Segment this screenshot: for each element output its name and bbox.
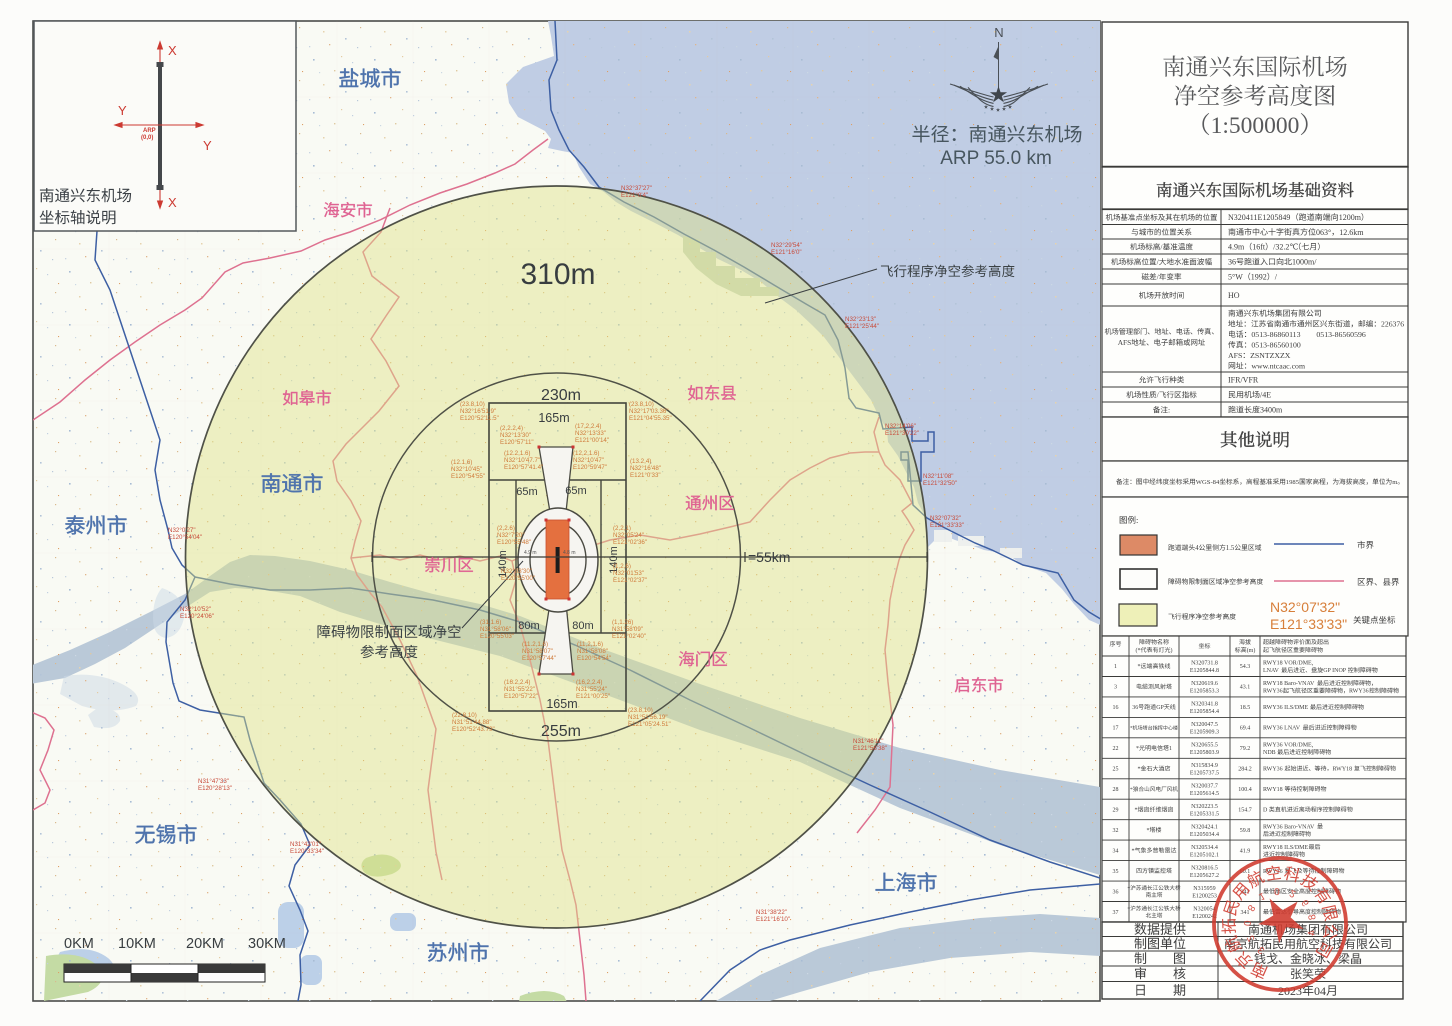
svg-text:www.ntcaac.com: www.ntcaac.com [1251, 362, 1305, 371]
svg-text:(13.2,4): (13.2,4) [630, 458, 651, 465]
svg-text:1: 1 [1169, 746, 1172, 752]
svg-text:N31°46'11": N31°46'11" [853, 738, 884, 745]
svg-text:165m: 165m [538, 411, 569, 425]
svg-text:N31°58'08": N31°58'08" [577, 648, 608, 655]
svg-text:LNAV: LNAV [1263, 668, 1280, 674]
svg-text:(m): (m) [1247, 647, 1256, 654]
svg-text:E121°16'0": E121°16'0" [771, 249, 802, 256]
svg-text:(22.8,10): (22.8,10) [452, 712, 477, 719]
svg-text:N32°01'53": N32°01'53" [613, 570, 644, 577]
svg-text:*: * [1138, 767, 1141, 773]
svg-text:4.9m: 4.9m [1228, 243, 1245, 252]
svg-text:1000m/: 1000m/ [1292, 258, 1317, 267]
svg-text:RWY18: RWY18 [1333, 767, 1353, 773]
svg-text:(17,2,2.4): (17,2,2.4) [575, 423, 601, 430]
svg-text:HO: HO [1228, 291, 1240, 300]
svg-text:E121°16'10": E121°16'10" [756, 916, 790, 923]
svg-text:18.5: 18.5 [1240, 705, 1251, 711]
svg-text:*: * [1147, 828, 1150, 834]
svg-text:N32°37'27": N32°37'27" [621, 185, 652, 192]
svg-text:12.6km: 12.6km [1339, 228, 1364, 237]
svg-text:29: 29 [1113, 808, 1119, 814]
svg-text:0: 0 [1241, 920, 1252, 926]
svg-text:N320341.8: N320341.8 [1191, 702, 1218, 708]
svg-text:X: X [168, 43, 177, 58]
svg-text:(16.2,2.4): (16.2,2.4) [504, 679, 530, 686]
svg-text:341: 341 [1241, 910, 1250, 916]
svg-text:16: 16 [1113, 705, 1119, 711]
svg-text:41.9: 41.9 [1240, 848, 1251, 854]
svg-text:E120°55'03": E120°55'03" [480, 633, 514, 640]
svg-text:/32.2℃: /32.2℃ [1273, 243, 1298, 252]
svg-text:*: * [1127, 886, 1130, 892]
svg-text:0513-86560100: 0513-86560100 [1251, 341, 1300, 350]
svg-text:E120°52'11.5": E120°52'11.5" [460, 415, 499, 422]
svg-text:N320424.1: N320424.1 [1191, 824, 1218, 830]
svg-text:*: * [1130, 787, 1133, 793]
svg-text:N320411E1205849: N320411E1205849 [1228, 213, 1290, 222]
svg-text:4.8 m: 4.8 m [563, 550, 576, 556]
svg-text:(23.8,10): (23.8,10) [460, 401, 485, 408]
svg-text:80m: 80m [518, 620, 539, 632]
svg-text:E121°02'40": E121°02'40" [612, 633, 646, 640]
svg-text:0513-86860113: 0513-86860113 [1251, 330, 1300, 339]
svg-text:E120°57'22": E120°57'22" [504, 693, 538, 700]
svg-text:E1205844.8: E1205844.8 [1190, 668, 1219, 674]
svg-text:E121°32'50": E121°32'50" [923, 480, 957, 487]
svg-text:(*: (* [1136, 647, 1141, 654]
svg-text:N31°47'33": N31°47'33" [198, 778, 229, 785]
svg-text:*: * [1132, 848, 1135, 854]
svg-text:(2,2.6): (2,2.6) [497, 525, 515, 532]
svg-text:RWY18: RWY18 [1263, 787, 1283, 793]
svg-text:N320054: N320054 [1193, 906, 1215, 912]
svg-text:(23.8,10): (23.8,10) [629, 401, 654, 408]
svg-text:E120°57'41.4": E120°57'41.4" [504, 464, 543, 471]
svg-text:E1205102.1: E1205102.1 [1190, 852, 1219, 858]
svg-text:RWY36: RWY36 [1263, 767, 1283, 773]
svg-text:20KM: 20KM [186, 936, 224, 952]
svg-text:100.4: 100.4 [1238, 787, 1252, 793]
svg-text:N32°07'32": N32°07'32" [930, 515, 961, 522]
svg-text:1: 1 [1114, 664, 1117, 670]
svg-text:N31°51'44.88": N31°51'44.88" [452, 719, 492, 726]
svg-text:E1205614.5: E1205614.5 [1190, 791, 1219, 797]
svg-text:N320816.5: N320816.5 [1191, 865, 1218, 871]
svg-text:69.4: 69.4 [1240, 726, 1251, 732]
svg-text:N320037.7: N320037.7 [1191, 784, 1218, 790]
svg-text:N31°58'07": N31°58'07" [522, 648, 553, 655]
svg-text:36: 36 [1132, 705, 1138, 711]
svg-text::: : [1168, 406, 1170, 415]
svg-text:E121°33'33": E121°33'33" [1270, 616, 1347, 632]
svg-text:N320223.5: N320223.5 [1191, 804, 1218, 810]
svg-text:NDB: NDB [1263, 750, 1276, 756]
svg-text:32: 32 [1113, 828, 1119, 834]
svg-text:16ft: 16ft [1252, 243, 1266, 252]
svg-text:5°W: 5°W [1228, 273, 1243, 282]
svg-text:E120°57'11": E120°57'11" [500, 439, 534, 446]
svg-text:22: 22 [1113, 746, 1119, 752]
svg-text:E121°0'4": E121°0'4" [621, 192, 648, 199]
svg-text:N32°0'27": N32°0'27" [168, 527, 196, 534]
svg-text:N32°29'54": N32°29'54" [771, 242, 802, 249]
svg-text:(11.2,1.6): (11.2,1.6) [522, 641, 548, 648]
svg-text:59.8: 59.8 [1240, 828, 1251, 834]
svg-text:N32°10'52": N32°10'52" [180, 606, 211, 613]
svg-text:E1205331.5: E1205331.5 [1190, 812, 1219, 818]
svg-text:WGS-84: WGS-84 [1196, 479, 1220, 486]
svg-text:35: 35 [1113, 869, 1119, 875]
svg-text:N32°16'48": N32°16'48" [630, 465, 661, 472]
svg-text:E120°55'48": E120°55'48" [497, 539, 531, 546]
svg-text:(31,1.6): (31,1.6) [480, 619, 501, 626]
svg-text:(0,0): (0,0) [141, 135, 153, 141]
svg-text:E120°24'06": E120°24'06" [180, 613, 214, 620]
svg-text:N32°03'30": N32°03'30" [501, 568, 532, 575]
svg-text:E121°56'38": E121°56'38" [853, 745, 887, 752]
svg-text:30KM: 30KM [248, 936, 286, 952]
svg-text:80m: 80m [572, 620, 593, 632]
svg-text:AFS: AFS [1228, 351, 1242, 360]
svg-text:3: 3 [1114, 685, 1117, 691]
svg-text:E121°25'44": E121°25'44" [845, 323, 879, 330]
svg-text:(1,2,6): (1,2,6) [613, 563, 631, 570]
svg-text:226376: 226376 [1381, 320, 1404, 329]
svg-text:Y: Y [203, 138, 212, 153]
svg-text:N32°07'32": N32°07'32" [1270, 599, 1340, 615]
svg-text:1:500000: 1:500000 [1211, 113, 1300, 139]
svg-text:N320534.4: N320534.4 [1191, 845, 1218, 851]
svg-text:N31°55'22": N31°55'22" [504, 686, 535, 693]
svg-text:E121°02'36": E121°02'36" [613, 539, 647, 546]
svg-text:(12,2,1.6): (12,2,1.6) [573, 450, 599, 457]
svg-text:N32°13'33": N32°13'33" [575, 430, 606, 437]
svg-text:154.7: 154.7 [1238, 808, 1252, 814]
svg-text:54.3: 54.3 [1240, 664, 1251, 670]
svg-text:28: 28 [1113, 787, 1119, 793]
svg-text:3400m: 3400m [1260, 406, 1283, 415]
svg-text:N31°51'56.19": N31°51'56.19" [628, 714, 668, 721]
svg-text:E121°05'24.51": E121°05'24.51" [628, 721, 671, 728]
svg-text:E120°57'44": E120°57'44" [522, 655, 556, 662]
svg-text:Y: Y [118, 103, 127, 118]
svg-text:(12.1,6): (12.1,6) [451, 459, 472, 466]
svg-text:E1205909.3: E1205909.3 [1190, 730, 1219, 736]
svg-text:65m: 65m [565, 485, 586, 497]
svg-text:E1205737.5: E1205737.5 [1190, 771, 1219, 777]
svg-text:65m: 65m [516, 486, 537, 498]
svg-text:(12.2,1.6): (12.2,1.6) [504, 450, 530, 457]
svg-text:(23.8,10): (23.8,10) [628, 707, 653, 714]
svg-text:4.9 m: 4.9 m [524, 550, 537, 556]
svg-text:(16,2,2.4): (16,2,2.4) [576, 679, 602, 686]
svg-text:N320655.5: N320655.5 [1191, 743, 1218, 749]
svg-text:E121°00'14": E121°00'14" [575, 437, 609, 444]
svg-text:N32°13'30": N32°13'30" [500, 432, 531, 439]
svg-text:=55km: =55km [748, 549, 790, 565]
svg-text:): ) [1171, 647, 1173, 654]
svg-text:255m: 255m [541, 723, 581, 740]
svg-text:RWY36 LNAV: RWY36 LNAV [1263, 726, 1301, 732]
svg-text:1.5: 1.5 [1226, 545, 1235, 552]
svg-text:063°: 063° [1316, 228, 1331, 237]
svg-text:N32°10'45": N32°10'45" [451, 466, 482, 473]
svg-text:E1205854.4: E1205854.4 [1190, 709, 1219, 715]
svg-text:E120°54'54": E120°54'54" [577, 655, 611, 662]
svg-text:E120°59'47": E120°59'47" [573, 464, 607, 471]
svg-text:E121°04'55.35": E121°04'55.35" [629, 415, 672, 422]
svg-text:1992: 1992 [1251, 273, 1267, 282]
svg-text:E120°52'43.79": E120°52'43.79" [452, 726, 495, 733]
svg-text:(2,2.2,4): (2,2.2,4) [500, 425, 523, 432]
svg-text:04: 04 [1314, 984, 1326, 998]
svg-text:230m: 230m [541, 387, 581, 404]
svg-text:AFS: AFS [1118, 338, 1132, 347]
svg-text:E121°30'22": E121°30'22" [885, 430, 919, 437]
svg-text:RWY36: RWY36 [1263, 689, 1283, 695]
svg-text:RWY36 Baro-VNAV: RWY36 Baro-VNAV [1263, 824, 1315, 830]
svg-text:D: D [1263, 808, 1268, 814]
svg-text:N31°55'24": N31°55'24" [576, 686, 607, 693]
svg-text:m: m [1392, 479, 1398, 486]
svg-text:E120°33'34": E120°33'34" [290, 848, 324, 855]
svg-text:36: 36 [1113, 889, 1119, 895]
svg-text:(2,2,1): (2,2,1) [613, 525, 631, 532]
svg-text:1985: 1985 [1286, 479, 1300, 486]
svg-text:N315959: N315959 [1193, 886, 1215, 892]
svg-text:E1205627.2: E1205627.2 [1190, 873, 1219, 879]
svg-text:E1205853.3: E1205853.3 [1190, 689, 1219, 695]
svg-text:N32°23'13": N32°23'13" [845, 316, 876, 323]
svg-text:N31°38'22": N31°38'22" [756, 909, 787, 916]
svg-text:*: * [1136, 746, 1139, 752]
svg-text:165m: 165m [546, 697, 577, 711]
svg-text:RWY36: RWY36 [1349, 689, 1369, 695]
svg-text:N32°7'20": N32°7'20" [497, 532, 525, 539]
svg-text:N: N [994, 25, 1003, 40]
svg-text:E1205803.9: E1205803.9 [1190, 750, 1219, 756]
svg-text:RWY36 ILS/DME: RWY36 ILS/DME [1263, 705, 1309, 711]
svg-text:284.2: 284.2 [1238, 767, 1252, 773]
svg-text:E121°33'33": E121°33'33" [930, 522, 964, 529]
svg-text:1200m: 1200m [1339, 213, 1362, 222]
svg-text:N32°11'08": N32°11'08" [923, 473, 954, 480]
svg-text:N320619.6: N320619.6 [1191, 681, 1218, 687]
svg-text:ARP: ARP [143, 128, 156, 134]
svg-text:79.2: 79.2 [1240, 746, 1251, 752]
svg-text:36: 36 [1228, 258, 1236, 267]
svg-text:N32°14'06": N32°14'06" [885, 423, 916, 430]
svg-text:N31°58'06": N31°58'06" [480, 626, 511, 633]
svg-text::: : [1136, 515, 1138, 525]
svg-text:RWY36 VOR/DME,: RWY36 VOR/DME, [1263, 743, 1314, 749]
svg-text:10KM: 10KM [118, 936, 156, 952]
svg-text:37: 37 [1113, 910, 1119, 916]
svg-text:N32°10'47.7": N32°10'47.7" [504, 457, 540, 464]
svg-text:E120°54'55": E120°54'55" [451, 473, 485, 480]
svg-text:E120°54'04": E120°54'04" [168, 534, 202, 541]
svg-text:*: * [1138, 664, 1141, 670]
svg-text:E1205034.4: E1205034.4 [1190, 832, 1219, 838]
svg-text:(11,2,1.6): (11,2,1.6) [577, 641, 603, 648]
svg-text:N32°10'47": N32°10'47" [573, 457, 604, 464]
svg-text:N320731.8: N320731.8 [1191, 661, 1218, 667]
svg-text:4: 4 [1195, 545, 1199, 552]
svg-text:0KM: 0KM [64, 936, 94, 952]
svg-text:/4E: /4E [1260, 391, 1271, 400]
svg-text:34: 34 [1113, 848, 1119, 854]
svg-text:E1200253: E1200253 [1192, 893, 1217, 899]
svg-text:N320047.5: N320047.5 [1191, 722, 1218, 728]
svg-text:ARP 55.0 km: ARP 55.0 km [940, 148, 1052, 169]
svg-text:N32°05'24": N32°05'24" [613, 532, 644, 539]
svg-text:43.1: 43.1 [1240, 685, 1251, 691]
svg-text:E120°28'13": E120°28'13" [198, 785, 232, 792]
svg-text:ZSNTZXZX: ZSNTZXZX [1250, 351, 1291, 360]
svg-text:17: 17 [1113, 726, 1119, 732]
svg-text:N31°58'09": N31°58'09" [612, 626, 643, 633]
svg-text:E121°0'33": E121°0'33" [630, 472, 661, 479]
svg-text:E121°00'25": E121°00'25" [576, 693, 610, 700]
svg-text:310m: 310m [520, 258, 595, 291]
svg-text:*: * [1135, 808, 1138, 814]
svg-text:0513-86560596: 0513-86560596 [1316, 330, 1365, 339]
svg-text:N315834.9: N315834.9 [1191, 763, 1218, 769]
svg-text:X: X [168, 195, 177, 210]
svg-text:N32°17'03.36": N32°17'03.36" [629, 408, 669, 415]
svg-text:RWY18 Baro-VNAV: RWY18 Baro-VNAV [1263, 681, 1315, 687]
svg-text:GP: GP [1156, 705, 1164, 711]
svg-text:IFR/VFR: IFR/VFR [1228, 376, 1259, 385]
svg-text:RWY18 VOR/DME,: RWY18 VOR/DME, [1263, 661, 1314, 667]
svg-text:RWY18 ILS/DME: RWY18 ILS/DME [1263, 845, 1309, 851]
svg-text:E121°02'37": E121°02'37" [613, 577, 647, 584]
svg-text:25: 25 [1113, 767, 1119, 773]
svg-text:GP INOP: GP INOP [1323, 668, 1347, 674]
svg-text:N31°42'01": N31°42'01" [290, 841, 321, 848]
svg-text:*: * [1127, 906, 1130, 912]
svg-text:N32°16'51.9": N32°16'51.9" [460, 408, 496, 415]
svg-text:E120°55'00": E120°55'00" [501, 575, 535, 582]
svg-text:(1,1.26): (1,1.26) [612, 619, 633, 626]
